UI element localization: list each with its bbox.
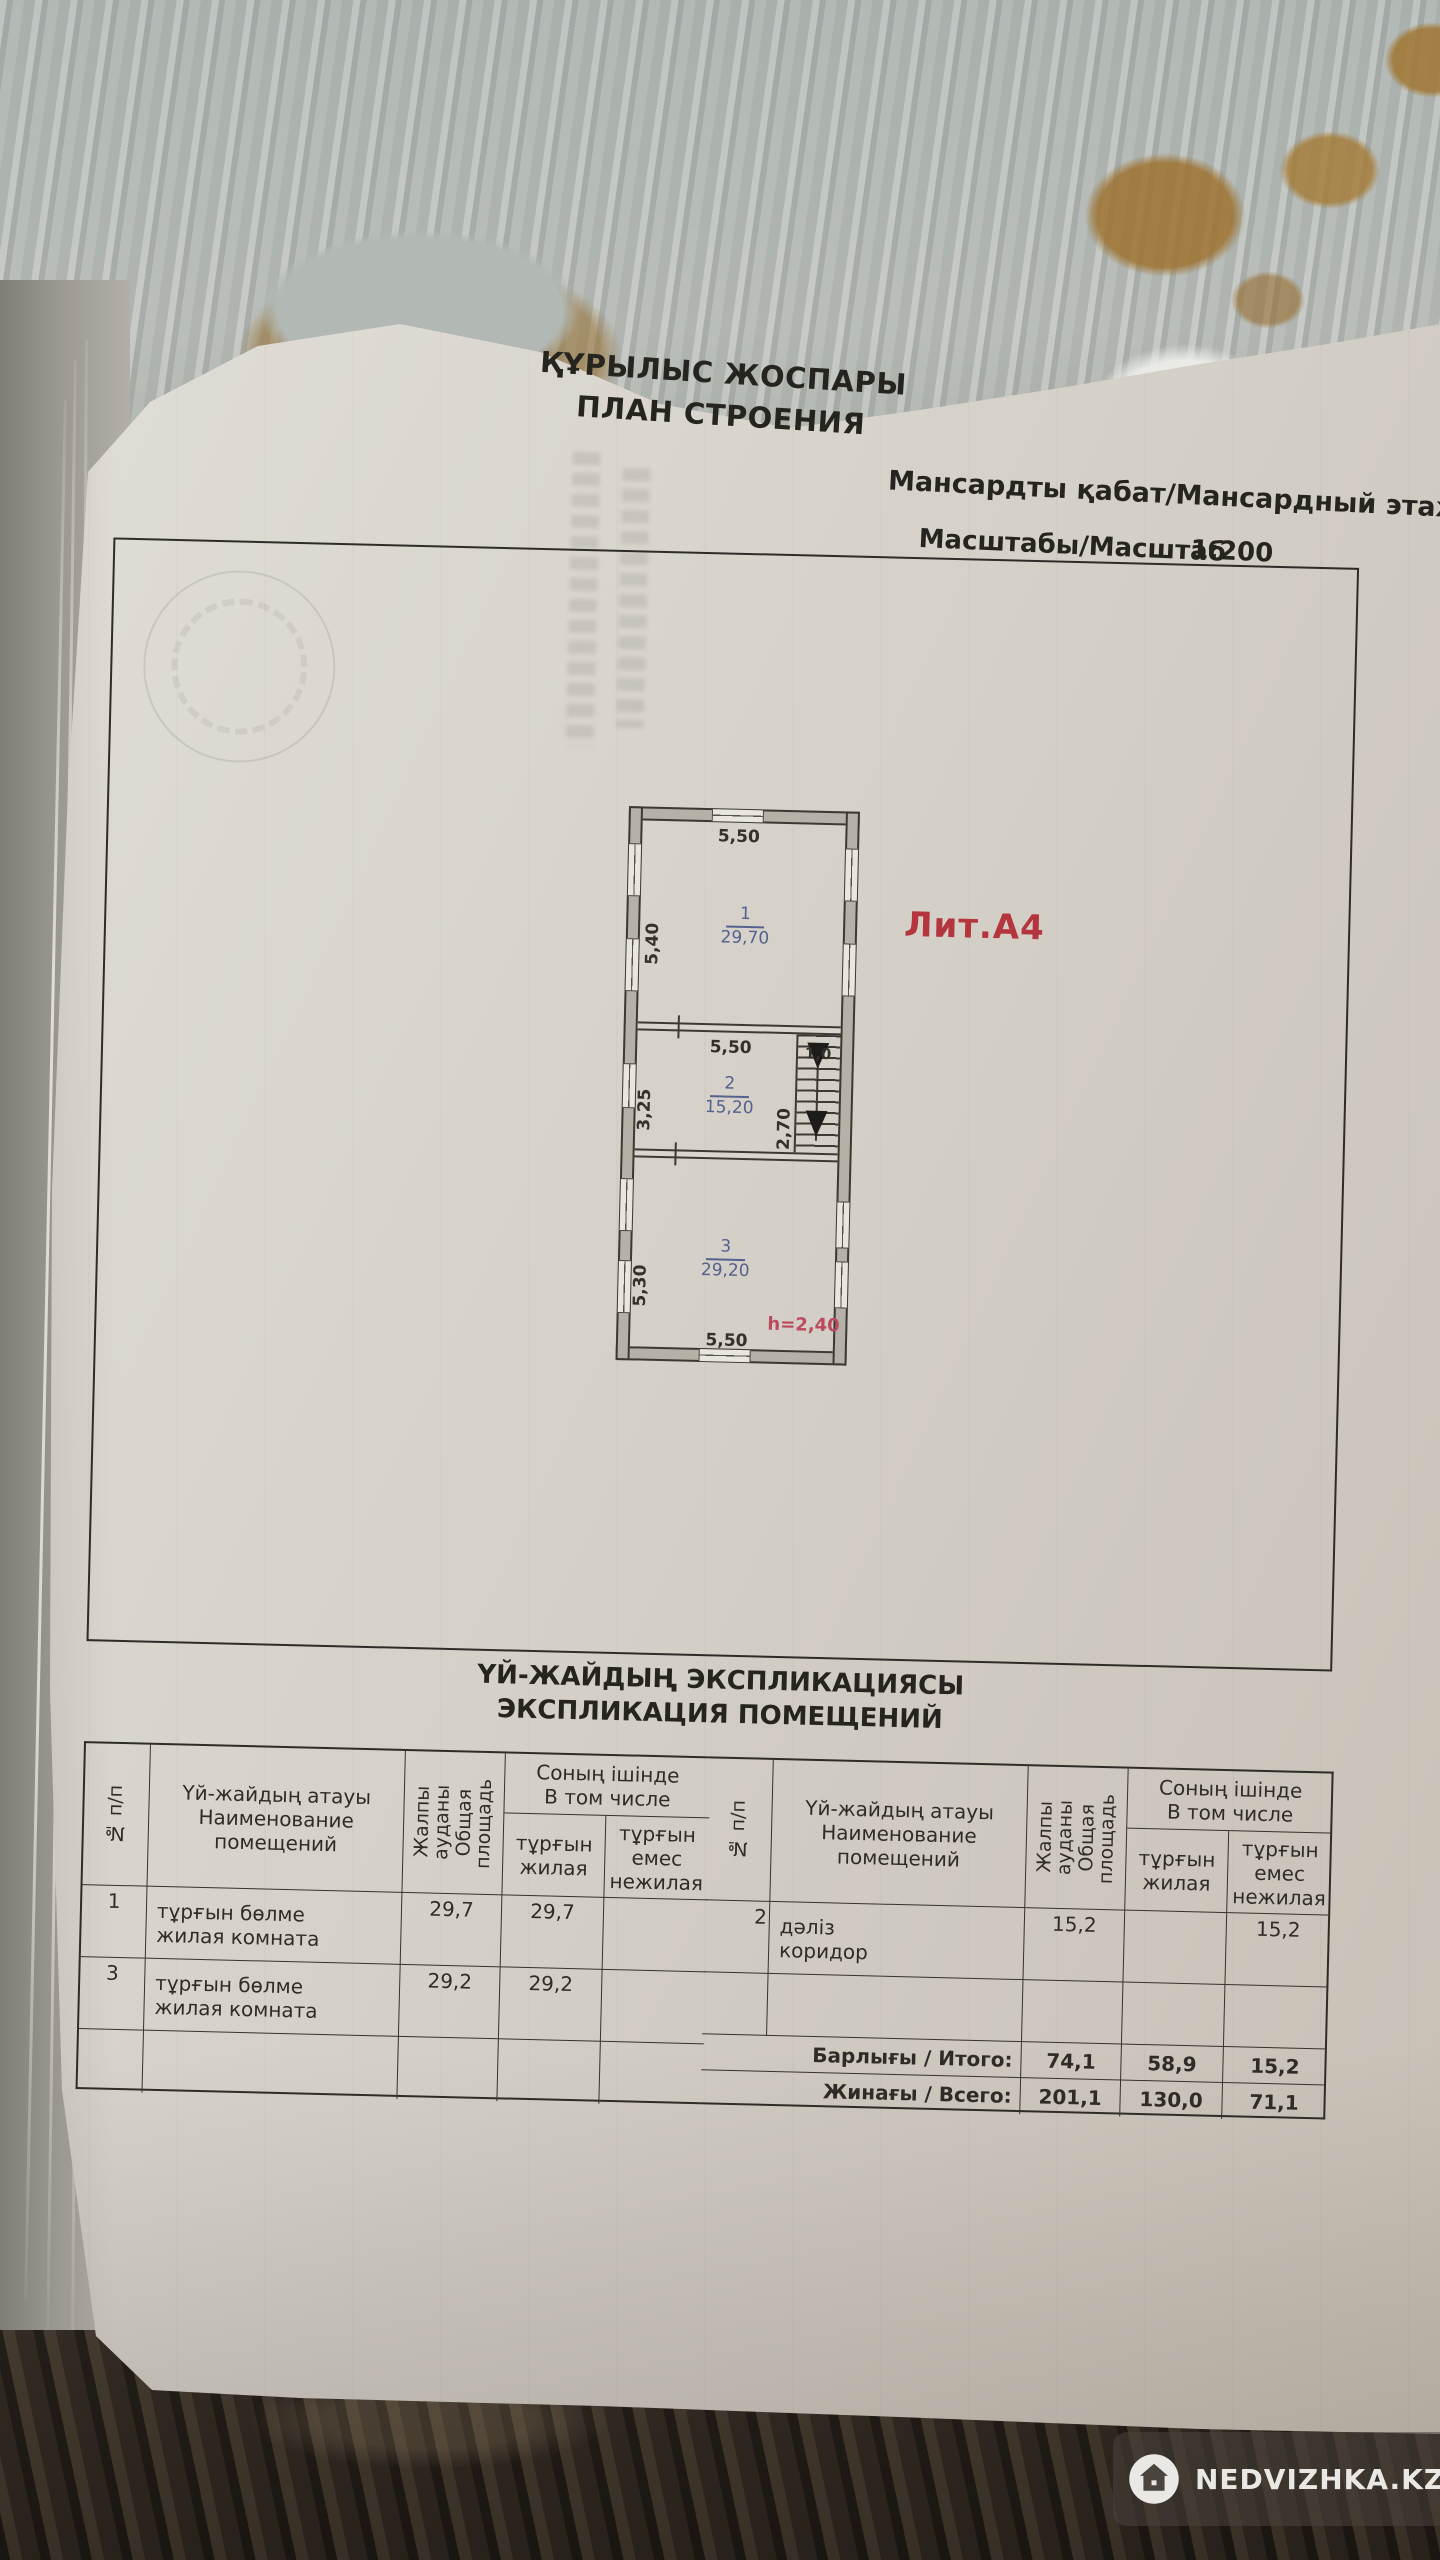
explication-table-left: № п/п Үй-жайдың атауы Наименование помещ… <box>76 1741 709 2104</box>
room-3-label: 3 29,20 <box>682 1236 768 1284</box>
floor-label: Мансардты қабат/Мансардный этаж <box>887 465 1440 524</box>
col-header-num: № п/п <box>705 1758 773 1902</box>
row-living: 29,7 <box>501 1895 605 1969</box>
row-nonliving <box>1224 1985 1328 2049</box>
room-1-number: 1 <box>726 904 765 929</box>
totals-vsego-label: Жинағы / Всего: <box>700 2070 1021 2114</box>
row-num: 2 <box>704 1900 771 1974</box>
document-title: ҚҰРЫЛЫС ЖОСПАРЫ ПЛАН СТРОЕНИЯ <box>420 334 1024 456</box>
window <box>628 843 641 896</box>
totals-itogo-living: 58,9 <box>1121 2045 1224 2083</box>
col-header-nonliving: тұрғын емес нежилая <box>1227 1831 1332 1915</box>
row-living <box>497 2039 600 2103</box>
row-name: дәліз коридор <box>769 1902 1026 1980</box>
room-2-area: 15,20 <box>705 1097 754 1118</box>
row-living <box>1122 1983 1225 2047</box>
window <box>835 1261 848 1308</box>
dim-bottom: 5,50 <box>689 1330 764 1352</box>
row-total <box>397 2037 498 2101</box>
room-2-label: 2 15,20 <box>686 1073 772 1121</box>
dim-stair-side: 2,70 <box>773 1087 795 1172</box>
explication-title: ҮЙ-ЖАЙДЫҢ ЭКСПЛИКАЦИЯСЫ ЭКСПЛИКАЦИЯ ПОМЕ… <box>340 1655 1101 1741</box>
row-num <box>702 1972 768 2036</box>
row-name: тұрғын бөлме жилая комната <box>146 1887 403 1965</box>
dim-room1-left: 5,40 <box>642 904 664 984</box>
ceiling-height-note: h=2,40 <box>767 1314 840 1337</box>
col-header-living: тұрғын жилая <box>502 1813 606 1897</box>
row-nonliving <box>601 1970 706 2044</box>
row-nonliving: 15,2 <box>1225 1913 1330 1987</box>
row-num: 1 <box>81 1885 148 1959</box>
row-name <box>142 2031 398 2099</box>
row-num <box>77 2029 143 2093</box>
totals-itogo-total: 74,1 <box>1021 2042 1122 2080</box>
window <box>836 1201 849 1248</box>
row-num: 3 <box>79 1957 146 2031</box>
explication-table-right: № п/п Үй-жайдың атауы Наименование помещ… <box>700 1756 1333 2119</box>
totals-vsego-living: 130,0 <box>1120 2081 1223 2119</box>
stair-arrow-down-icon <box>805 1111 828 1138</box>
row-living <box>1123 1911 1227 1985</box>
row-total: 29,7 <box>401 1893 503 1967</box>
dim-stair-top: 1,0 <box>796 1044 840 1063</box>
totals-vsego-nonliving: 71,1 <box>1222 2083 1326 2122</box>
room-1-area: 29,70 <box>720 928 769 949</box>
room-3-number: 3 <box>706 1236 745 1261</box>
window <box>845 848 858 901</box>
row-total <box>1022 1980 1123 2044</box>
window <box>626 938 639 991</box>
totals-vsego-total: 201,1 <box>1020 2078 1121 2116</box>
watermark-text: NEDVIZHKA.KZ <box>1195 2463 1440 2496</box>
col-header-total-area: Жалпы ауданы Общая площадь <box>402 1751 505 1895</box>
room-3-area: 29,20 <box>701 1260 750 1281</box>
dim-room2-top: 5,50 <box>693 1037 768 1059</box>
row-name: тұрғын бөлме жилая комната <box>144 1959 401 2037</box>
col-header-living: тұрғын жилая <box>1125 1829 1229 1913</box>
col-header-nonliving: тұрғын емес нежилая <box>604 1816 709 1900</box>
house-icon <box>1127 2452 1181 2506</box>
col-header-name: Үй-жайдың атауы Наименование помещений <box>770 1760 1028 1908</box>
row-living: 29,2 <box>499 1967 603 2041</box>
col-header-num: № п/п <box>83 1743 151 1887</box>
totals-itogo-nonliving: 15,2 <box>1223 2047 1327 2086</box>
col-header-total-area: Жалпы ауданы Общая площадь <box>1025 1766 1128 1910</box>
dim-room3-left: 5,30 <box>629 1241 651 1329</box>
col-header-including: Соның ішінде В том числе <box>1127 1769 1333 1834</box>
window <box>712 809 764 822</box>
col-header-including: Соның ішінде В том числе <box>504 1753 710 1818</box>
dim-room2-left: 3,25 <box>634 1070 656 1148</box>
window <box>842 943 855 996</box>
nedvizhka-watermark: NEDVIZHKA.KZ <box>1113 2432 1440 2526</box>
row-total: 15,2 <box>1023 1908 1125 1982</box>
col-header-name: Үй-жайдың атауы Наименование помещений <box>148 1745 406 1893</box>
row-total: 29,2 <box>399 1965 501 2039</box>
dim-top: 5,50 <box>701 826 776 848</box>
row-name <box>767 1974 1023 2042</box>
room-2-number: 2 <box>710 1073 749 1098</box>
row-nonliving <box>599 2042 703 2106</box>
liter-label: Лит.А4 <box>904 905 1046 948</box>
row-nonliving <box>603 1898 708 1972</box>
room-1-label: 1 29,70 <box>700 903 791 951</box>
window <box>623 1063 636 1108</box>
photo-of-floor-plan-document: ҚҰРЫЛЫС ЖОСПАРЫ ПЛАН СТРОЕНИЯ Мансардты … <box>0 0 1440 2560</box>
page-content: ҚҰРЫЛЫС ЖОСПАРЫ ПЛАН СТРОЕНИЯ Мансардты … <box>0 0 1440 2560</box>
window <box>620 1178 633 1231</box>
